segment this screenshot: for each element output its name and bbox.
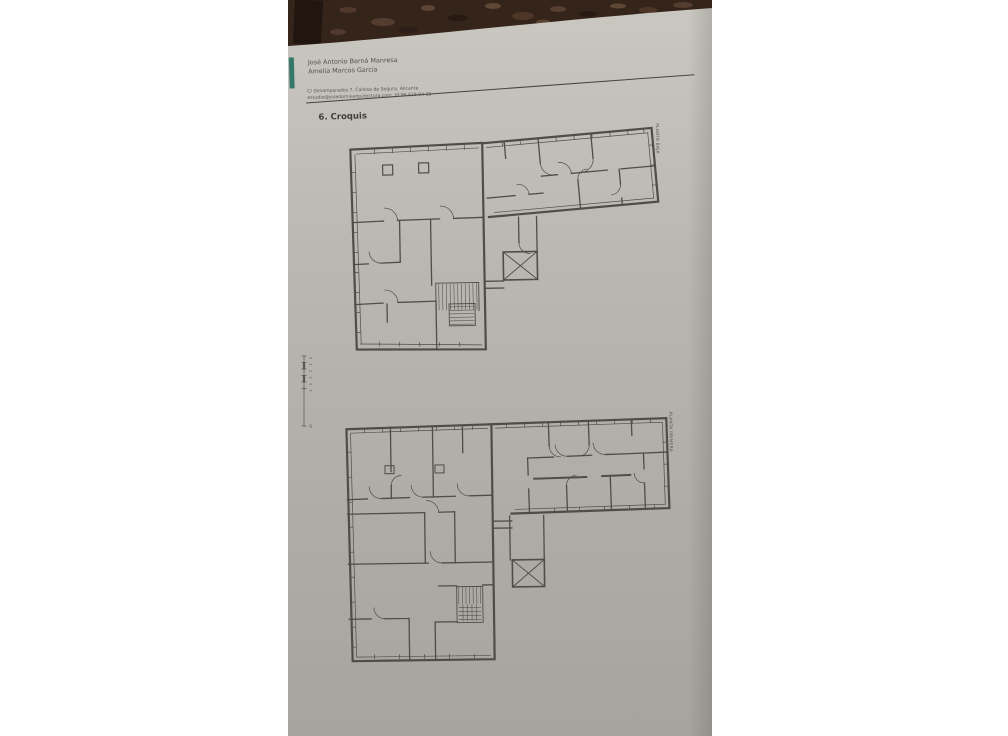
document-photo: José Antonio Berná Manresa Amelia Marcos… (288, 0, 712, 736)
scale-label-10: 10 (309, 424, 313, 428)
plan-label-ground: PLANTA BAJA (655, 123, 661, 154)
scale-label-4: 4 (309, 383, 313, 385)
page-canvas: José Antonio Berná Manresa Amelia Marcos… (0, 0, 1008, 736)
accent-bar (289, 57, 295, 88)
section-title: 6. Croquis (318, 111, 367, 122)
scale-label-2: 2 (309, 370, 313, 372)
plan-label-first: PLANTA PRIMERA (668, 412, 674, 452)
scale-label-3: 3 (309, 377, 313, 379)
scale-label-1: 1 (309, 364, 313, 366)
photo-svg: José Antonio Berná Manresa Amelia Marcos… (288, 0, 712, 736)
paper-edge-shade (688, 8, 712, 736)
scale-label-0: 0 (309, 357, 313, 359)
scale-label-5: 5 (309, 390, 313, 392)
